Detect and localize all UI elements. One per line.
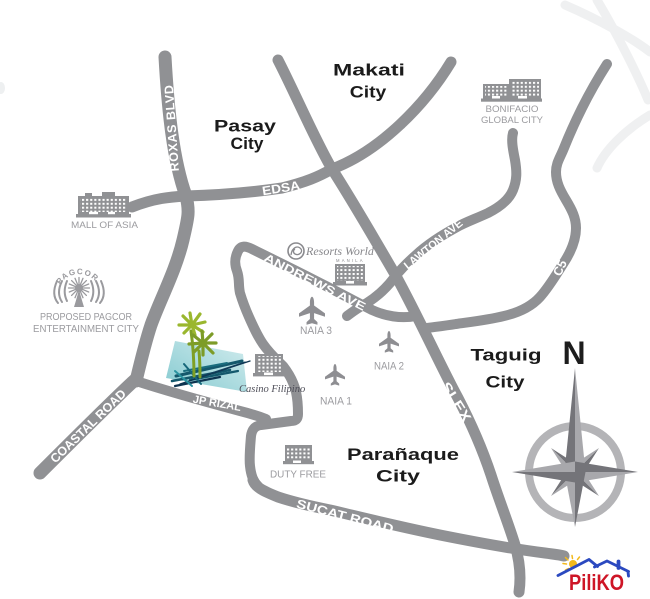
svg-text:City: City [376,466,421,485]
svg-text:City: City [231,134,265,153]
svg-text:Pasay: Pasay [214,117,277,136]
svg-text:PROPOSED PAGCOR: PROPOSED PAGCOR [40,311,132,323]
svg-text:Taguig: Taguig [471,346,542,365]
svg-text:N: N [562,335,585,371]
svg-text:Parañaque: Parañaque [347,445,459,464]
svg-text:City: City [486,373,526,392]
svg-text:City: City [350,83,387,102]
svg-text:MANILA: MANILA [336,258,365,263]
svg-text:Resorts World: Resorts World [305,244,375,258]
svg-text:MALL OF ASIA: MALL OF ASIA [71,220,138,230]
svg-text:Makati: Makati [333,61,405,80]
svg-text:NAIA 3: NAIA 3 [300,325,332,337]
svg-text:NAIA 2: NAIA 2 [374,361,404,373]
svg-text:ENTERTAINMENT CITY: ENTERTAINMENT CITY [33,323,139,335]
svg-text:GLOBAL CITY: GLOBAL CITY [481,115,544,126]
svg-text:Casino Filipino: Casino Filipino [239,384,305,395]
svg-text:NAIA 1: NAIA 1 [320,396,352,408]
svg-text:DUTY FREE: DUTY FREE [270,470,326,481]
svg-text:BONIFACIO: BONIFACIO [486,104,539,115]
svg-text:PiliKO: PiliKO [569,570,624,595]
